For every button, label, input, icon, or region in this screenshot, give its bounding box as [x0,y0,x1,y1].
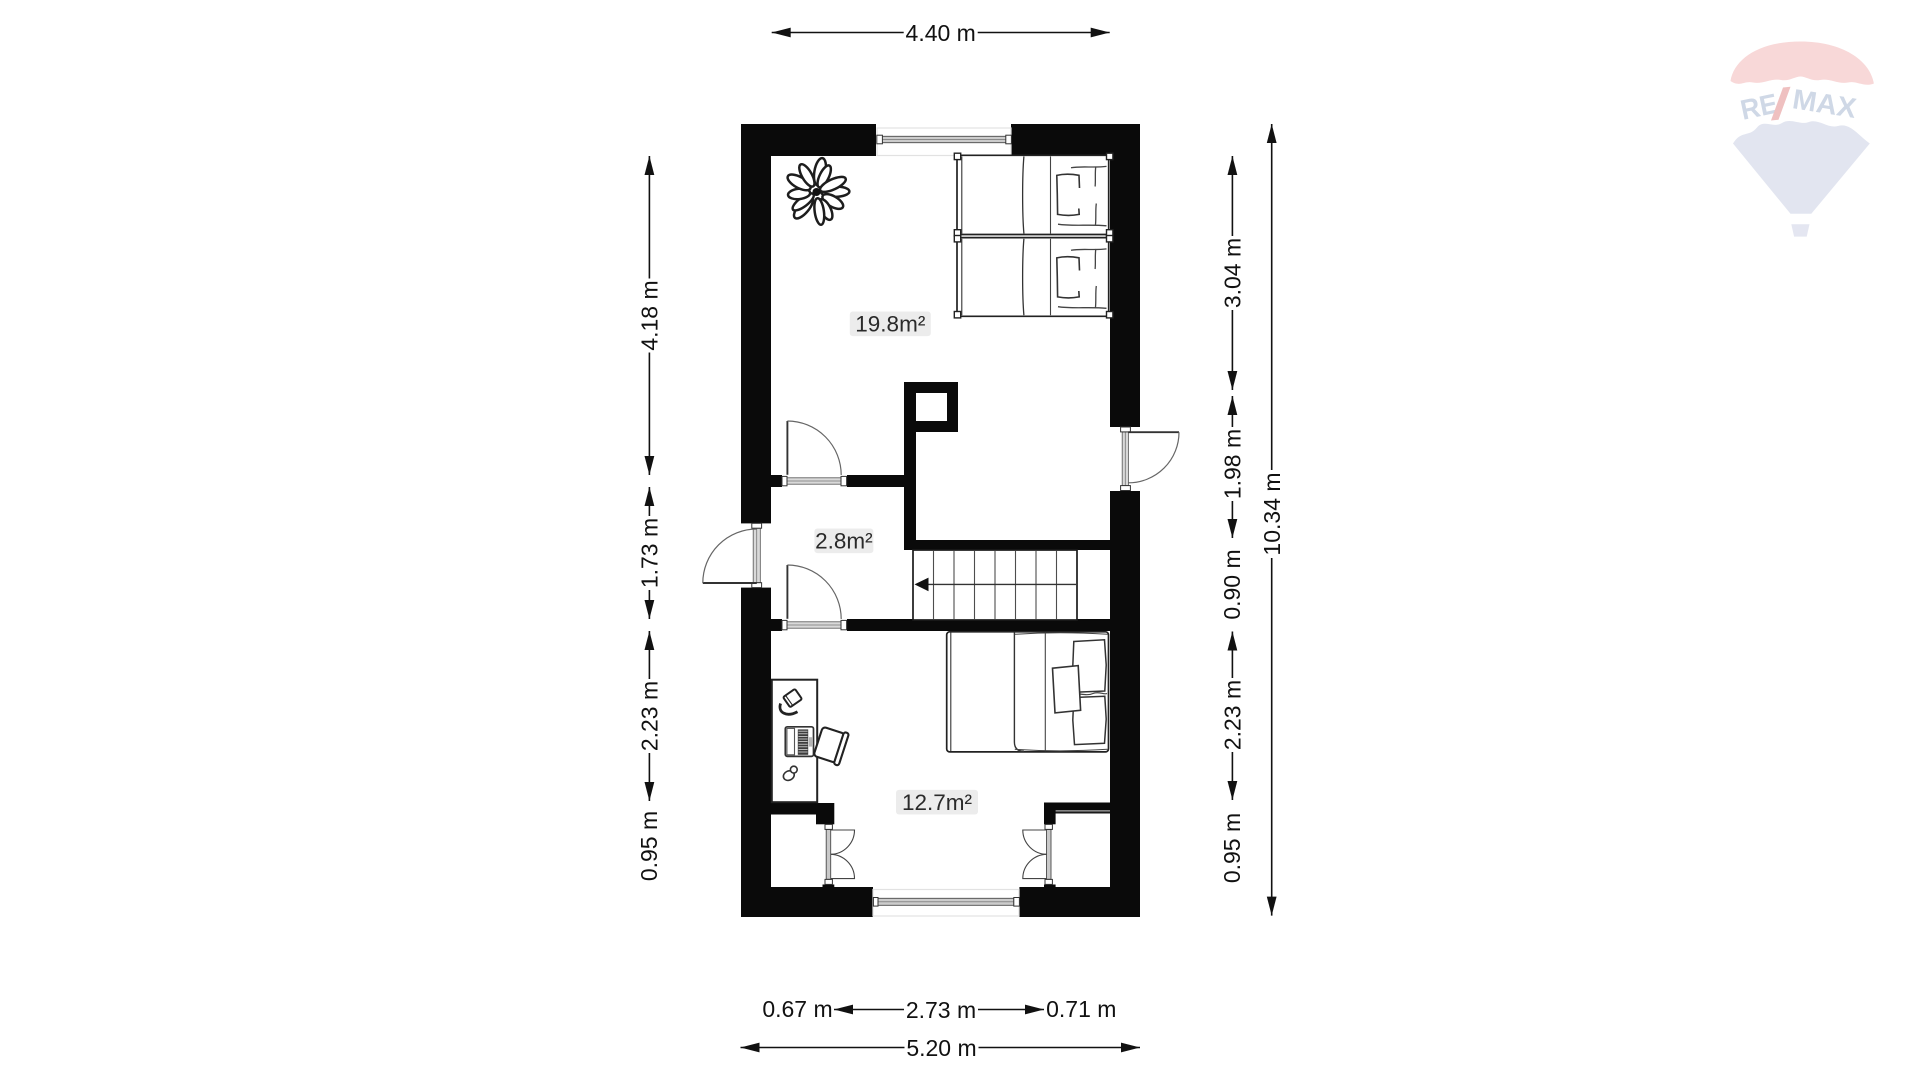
svg-text:0.95 m: 0.95 m [1219,813,1245,883]
svg-text:2.23 m: 2.23 m [637,681,663,751]
svg-text:0.90 m: 0.90 m [1219,549,1245,619]
svg-text:2.73 m: 2.73 m [906,997,976,1023]
svg-text:19.8m²: 19.8m² [855,312,926,337]
svg-text:0.95 m: 0.95 m [636,811,662,881]
svg-text:4.40 m: 4.40 m [906,20,976,46]
svg-text:3.04 m: 3.04 m [1220,238,1246,308]
svg-text:4.18 m: 4.18 m [637,280,663,350]
svg-text:10.34 m: 10.34 m [1259,472,1285,555]
svg-text:5.20 m: 5.20 m [906,1035,976,1061]
svg-text:1.98 m: 1.98 m [1220,429,1246,499]
svg-text:2.8m²: 2.8m² [815,529,873,554]
svg-text:1.73 m: 1.73 m [637,518,663,588]
svg-text:12.7m²: 12.7m² [902,790,973,815]
svg-text:2.23 m: 2.23 m [1220,680,1246,750]
svg-text:0.71 m: 0.71 m [1046,996,1116,1022]
svg-text:0.67 m: 0.67 m [762,996,832,1022]
